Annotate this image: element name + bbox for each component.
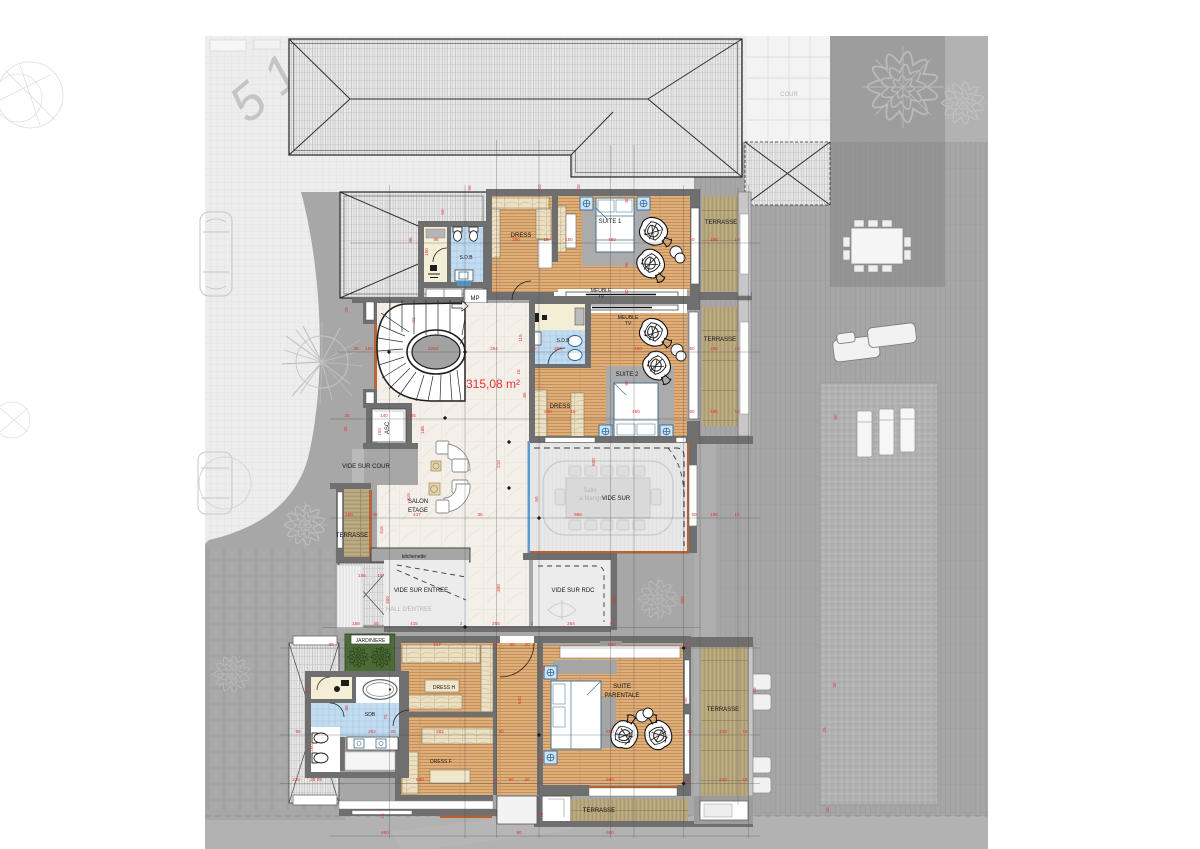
svg-text:TV: TV [625,321,632,327]
svg-text:300: 300 [680,596,685,604]
svg-text:30: 30 [832,682,837,688]
svg-text:660: 660 [606,777,614,782]
svg-text:90: 90 [516,830,522,835]
svg-text:250: 250 [554,346,562,351]
svg-text:150: 150 [565,237,573,242]
svg-text:90: 90 [467,185,472,191]
svg-text:15: 15 [734,346,740,351]
svg-text:50: 50 [683,697,688,703]
svg-text:40: 40 [373,621,379,626]
svg-text:15: 15 [734,237,740,242]
svg-text:415: 415 [410,621,418,626]
svg-text:VIDE SUR: VIDE SUR [602,496,631,502]
svg-text:85: 85 [522,392,527,398]
svg-text:15: 15 [570,409,576,414]
svg-text:2260: 2260 [428,346,439,351]
svg-text:S.D.B: S.D.B [459,255,473,261]
svg-text:25: 25 [380,813,385,819]
svg-text:15: 15 [734,409,740,414]
svg-text:96: 96 [433,237,439,242]
svg-text:50: 50 [691,512,697,517]
svg-text:50: 50 [689,346,695,351]
svg-text:kitchenette: kitchenette [402,554,426,560]
svg-text:465: 465 [408,413,416,418]
svg-text:315,08 m²: 315,08 m² [466,377,520,391]
svg-text:TERRASSE: TERRASSE [704,337,736,343]
svg-text:50: 50 [624,380,629,386]
svg-text:VIDE SUR COUR: VIDE SUR COUR [342,464,390,470]
svg-text:96: 96 [408,237,413,243]
svg-text:315: 315 [406,493,411,501]
svg-text:COUR: COUR [780,92,798,98]
svg-text:195: 195 [710,237,718,242]
svg-text:115: 115 [518,334,523,342]
svg-text:450: 450 [608,237,616,242]
svg-text:195: 195 [710,346,718,351]
svg-text:160: 160 [309,744,314,752]
svg-text:S.D.B: S.D.B [556,338,570,344]
svg-text:285: 285 [512,237,520,242]
svg-text:75: 75 [539,812,544,818]
svg-text:223: 223 [719,777,727,782]
svg-text:140: 140 [380,413,388,418]
svg-text:115: 115 [306,686,311,694]
svg-text:223: 223 [719,729,727,734]
svg-text:284: 284 [490,346,498,351]
svg-text:Salle: Salle [583,488,597,494]
svg-text:DRESS F: DRESS F [430,759,452,765]
svg-text:90: 90 [509,642,515,647]
svg-text:VIDE SUR ENTREE: VIDE SUR ENTREE [394,588,448,594]
svg-text:TERRASSE: TERRASSE [707,707,739,713]
svg-text:985: 985 [574,512,582,517]
svg-text:SUITE: SUITE [613,684,631,690]
svg-text:2: 2 [531,621,534,626]
svg-text:417: 417 [413,512,421,517]
svg-text:50: 50 [541,665,546,671]
svg-text:60: 60 [689,409,695,414]
svg-text:50: 50 [440,209,445,215]
svg-text:15: 15 [742,729,748,734]
svg-text:417: 417 [433,642,441,647]
svg-text:50: 50 [685,777,691,782]
svg-text:35: 35 [477,512,483,517]
svg-text:50: 50 [534,496,539,502]
svg-text:90: 90 [498,729,504,734]
svg-text:MP: MP [471,296,480,302]
svg-text:25: 25 [390,729,396,734]
svg-text:90: 90 [344,705,349,711]
svg-text:660: 660 [606,830,614,835]
svg-text:300: 300 [385,596,390,604]
svg-text:300: 300 [611,596,616,604]
svg-text:JARDINIERE: JARDINIERE [356,638,386,644]
svg-text:50: 50 [624,197,629,203]
svg-text:25 25: 25 25 [310,777,322,782]
svg-text:50: 50 [687,729,693,734]
svg-text:50: 50 [624,289,629,295]
svg-text:500: 500 [591,458,596,466]
svg-text:680: 680 [416,777,424,782]
svg-text:2: 2 [460,621,463,626]
svg-text:300: 300 [496,584,501,592]
svg-text:15: 15 [492,642,498,647]
svg-text:660: 660 [606,729,614,734]
svg-text:DRESS: DRESS [550,404,571,410]
svg-text:TV: TV [598,294,605,300]
svg-text:660: 660 [538,756,543,764]
svg-text:15: 15 [516,369,521,375]
svg-text:72: 72 [383,714,388,720]
svg-text:20: 20 [344,307,349,313]
svg-text:21: 21 [411,317,416,323]
svg-text:280: 280 [544,409,552,414]
svg-text:50: 50 [537,184,542,190]
svg-text:15: 15 [543,237,549,242]
svg-text:30: 30 [328,642,334,647]
svg-text:282: 282 [436,729,444,734]
svg-text:15: 15 [742,777,748,782]
svg-text:15: 15 [377,573,383,578]
svg-text:40: 40 [609,621,615,626]
svg-text:158: 158 [345,512,353,517]
svg-text:188: 188 [420,426,425,434]
svg-text:255: 255 [492,621,500,626]
svg-text:HALL D'ENTREE: HALL D'ENTREE [386,607,432,613]
svg-text:450: 450 [634,346,642,351]
svg-text:SDB: SDB [365,712,376,718]
svg-text:20: 20 [524,642,530,647]
svg-text:30: 30 [353,346,359,351]
svg-text:15: 15 [752,687,757,693]
svg-text:640: 640 [517,696,522,704]
svg-text:25: 25 [344,413,350,418]
svg-text:158: 158 [352,621,360,626]
svg-text:50: 50 [689,237,695,242]
svg-text:90: 90 [508,777,514,782]
svg-text:262: 262 [368,729,376,734]
svg-text:50: 50 [685,642,691,647]
svg-text:195: 195 [710,512,718,517]
svg-text:90: 90 [295,729,301,734]
svg-text:VIDE SUR RDC: VIDE SUR RDC [551,588,595,594]
svg-text:15: 15 [734,512,740,517]
svg-text:15: 15 [492,777,498,782]
svg-text:450: 450 [632,409,640,414]
svg-text:15: 15 [530,346,536,351]
svg-text:210: 210 [496,460,501,468]
svg-text:195: 195 [710,409,718,414]
svg-text:660: 660 [608,642,616,647]
svg-text:315: 315 [379,526,384,534]
svg-text:TERRASSE: TERRASSE [336,533,368,539]
svg-text:254: 254 [567,621,575,626]
svg-text:680: 680 [381,830,389,835]
svg-text:25: 25 [822,727,827,733]
svg-text:20: 20 [524,777,530,782]
svg-text:SUITE 2: SUITE 2 [616,372,639,378]
svg-text:50: 50 [624,262,629,268]
svg-text:150: 150 [365,346,373,351]
svg-text:25: 25 [343,426,348,432]
svg-text:185: 185 [358,573,366,578]
svg-text:225: 225 [292,777,300,782]
svg-text:30: 30 [576,184,581,190]
svg-text:50: 50 [833,414,838,420]
svg-text:150: 150 [377,428,382,436]
svg-text:50: 50 [825,807,830,813]
svg-text:TERRASSE: TERRASSE [705,220,737,226]
svg-text:40: 40 [372,512,378,517]
svg-text:DRESS H: DRESS H [433,685,456,691]
svg-text:150: 150 [424,248,429,256]
